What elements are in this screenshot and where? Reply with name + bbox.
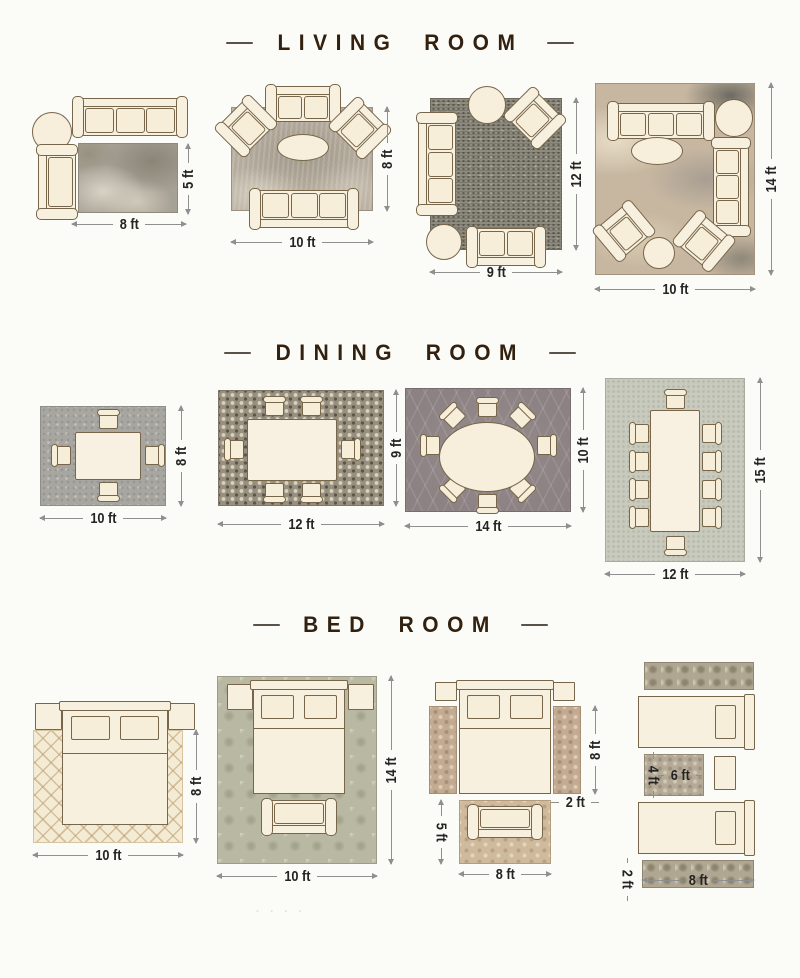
dim-width: 12 ft — [605, 566, 745, 582]
living-room-layout-10x8: 10 ft 8 ft — [215, 82, 400, 257]
runner-rug-left — [429, 706, 457, 794]
dining-chair — [341, 440, 356, 459]
dim-foot-rug-width: 8 ft — [459, 866, 551, 882]
dim-height: 5 ft — [180, 144, 196, 214]
side-table-round — [715, 99, 753, 137]
section-header-bed-room: BED ROOM — [0, 612, 800, 638]
title-dash-right — [549, 352, 576, 354]
bench — [263, 800, 335, 834]
dining-room-layout-12x15: 12 ft 15 ft — [598, 370, 788, 600]
dining-chair — [537, 436, 552, 455]
nightstand — [553, 682, 575, 701]
dining-room-layout-12x9: 12 ft 9 ft — [210, 380, 405, 535]
runner-rug-top — [644, 662, 754, 690]
sofa-3seat — [74, 98, 186, 136]
section-title: BED ROOM — [303, 612, 498, 638]
dining-table — [75, 432, 141, 480]
dining-table — [247, 419, 337, 481]
dining-chair — [634, 452, 649, 471]
dim-width: 10 ft — [33, 847, 183, 863]
loveseat — [468, 228, 544, 266]
bed-room-layout-10x14: 14 ft 10 ft — [205, 662, 405, 897]
dim-width: 10 ft — [217, 868, 377, 884]
title-dash-right — [547, 42, 574, 44]
living-room-layout-10x14: 10 ft 14 ft — [593, 73, 793, 313]
dim-height: 9 ft — [388, 390, 404, 506]
bed — [253, 682, 345, 794]
dining-chair — [478, 494, 497, 509]
dining-chair — [302, 401, 321, 416]
dim-width: 10 ft — [595, 281, 755, 297]
dining-chair — [634, 508, 649, 527]
dining-chair — [302, 483, 321, 498]
dim-height: 14 ft — [763, 83, 779, 275]
coffee-table-oval — [277, 134, 329, 161]
dim-width: 10 ft — [40, 510, 166, 526]
rug-8x5 — [78, 143, 178, 213]
dim-width: 8 ft — [642, 872, 754, 888]
dim-height: 10 ft — [575, 388, 591, 512]
dim-height: 14 ft — [383, 676, 399, 864]
sofa-3seat-vertical — [713, 139, 749, 235]
dining-chair — [666, 394, 685, 409]
dining-chair — [265, 483, 284, 498]
bed — [459, 682, 551, 794]
dim-width: 12 ft — [218, 516, 384, 532]
chaise — [38, 146, 76, 218]
living-room-layout-8x5: 8 ft 5 ft — [30, 88, 210, 248]
dining-chair — [702, 480, 717, 499]
sofa-3seat — [251, 190, 357, 228]
dining-chair — [634, 480, 649, 499]
dim-width: 14 ft — [405, 518, 571, 534]
dining-room-layout-10x8: 10 ft 8 ft — [35, 398, 195, 528]
bed-room-layout-twin-runners: 4 ft 6 ft 2 ft 8 ft — [622, 650, 797, 895]
bed — [62, 703, 168, 825]
dining-chair — [145, 446, 160, 465]
dim-runner-height: 2 ft — [620, 858, 634, 890]
section-title: LIVING ROOM — [277, 30, 523, 56]
dining-chair — [56, 446, 71, 465]
dim-height: 8 ft — [379, 107, 395, 211]
side-table-round — [426, 224, 462, 260]
dining-chair — [634, 424, 649, 443]
title-dash-right — [521, 624, 548, 626]
loveseat — [267, 86, 339, 122]
dim-width: 10 ft — [231, 234, 373, 250]
side-table-round — [468, 86, 506, 124]
bed-room-layout-runners: 8 ft 2 ft 5 ft 8 ft — [425, 662, 605, 892]
dining-table-long — [650, 410, 700, 532]
title-dash-left — [224, 352, 251, 354]
dining-chair — [478, 402, 497, 417]
twin-bed — [638, 696, 753, 748]
sofa-3seat — [609, 103, 713, 139]
bench — [469, 806, 541, 838]
dining-chair — [702, 452, 717, 471]
title-dash-left — [253, 624, 280, 626]
section-header-living-room: LIVING ROOM — [0, 30, 800, 56]
dim-width: 8 ft — [72, 216, 186, 232]
coffee-table-oval — [631, 137, 683, 165]
nightstand — [168, 703, 195, 730]
dining-chair — [99, 414, 118, 429]
sofa-3seat-vertical — [418, 114, 456, 214]
dining-table-oval — [439, 422, 535, 492]
runner-rug-right — [553, 706, 581, 794]
dim-height: 8 ft — [173, 406, 189, 506]
nightstand — [714, 756, 736, 790]
title-dash-left — [226, 42, 253, 44]
nightstand — [348, 684, 374, 710]
dining-chair — [666, 536, 685, 551]
rug-size-guide: LIVING ROOM 8 ft 5 ft 10 ft 8 ft 9 ft 12… — [0, 0, 800, 978]
dining-chair — [265, 401, 284, 416]
section-header-dining-room: DINING ROOM — [0, 340, 800, 366]
dining-chair — [702, 424, 717, 443]
nightstand — [435, 682, 457, 701]
dim-bed-side-height: 8 ft — [587, 706, 603, 794]
dining-chair — [229, 440, 244, 459]
bed-room-layout-10x8: 8 ft 10 ft — [28, 695, 208, 870]
dim-height: 12 ft — [568, 98, 584, 250]
side-table-round — [643, 237, 675, 269]
dining-chair — [99, 482, 118, 497]
dining-room-layout-14x10: 14 ft 10 ft — [403, 376, 593, 541]
dining-chair — [702, 508, 717, 527]
section-title: DINING ROOM — [275, 340, 524, 366]
living-room-layout-9x12: 9 ft 12 ft — [412, 78, 587, 288]
faint-watermark-dots: . . . . — [256, 903, 305, 915]
dim-height: 15 ft — [752, 378, 768, 562]
dim-accent-rug-width: 6 ft — [658, 768, 702, 782]
dim-height: 8 ft — [188, 730, 204, 843]
dim-runner-width: 2 ft — [551, 794, 599, 810]
nightstand — [35, 703, 62, 730]
dim-width: 9 ft — [430, 264, 562, 280]
twin-bed — [638, 802, 753, 854]
dining-chair — [425, 436, 440, 455]
dim-foot-rug-height: 5 ft — [433, 800, 449, 864]
